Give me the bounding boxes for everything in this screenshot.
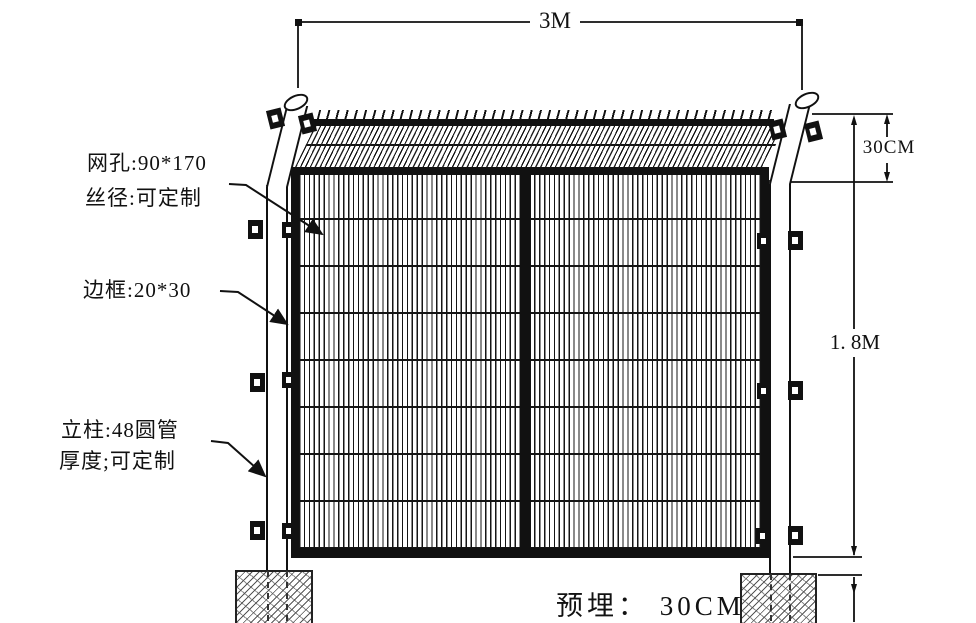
bent-top-rail — [313, 119, 774, 126]
dimension-label-width: 3M — [530, 8, 580, 34]
callout-wire-diameter: 丝径:可定制 — [85, 188, 202, 209]
dimension-label-panel-height: 1. 8M — [826, 330, 884, 355]
left-foundation-block — [235, 570, 313, 623]
panel-center-divider — [520, 167, 531, 558]
fence-technical-diagram: 3M 30CM 1. 8M 预埋： 30CM 网孔:90*170 丝径:可定制 … — [0, 0, 976, 623]
dimension-endpoint — [796, 19, 803, 26]
arrow-down — [851, 584, 857, 594]
buried-post-edge — [789, 574, 791, 621]
arrow-down — [851, 546, 857, 556]
dimension-endpoint — [295, 19, 302, 26]
clamp-bracket — [788, 231, 803, 250]
buried-post-edge — [770, 574, 772, 621]
right-foundation-block — [740, 573, 817, 623]
clamp-bracket — [756, 528, 769, 544]
callout-mesh-size: 网孔:90*170 — [87, 153, 207, 174]
arrow-down — [884, 172, 890, 182]
buried-post-edge — [267, 571, 269, 621]
clamp-bracket — [282, 222, 295, 238]
clamp-bracket — [788, 381, 803, 400]
callout-frame-size: 边框:20*30 — [83, 280, 191, 301]
dimension-label-bend-height: 30CM — [859, 137, 919, 159]
clamp-bracket — [282, 523, 295, 539]
clamp-bracket — [282, 372, 295, 388]
dimension-label-embed-depth: 预埋： 30CM — [556, 584, 745, 623]
clamp-bracket — [250, 373, 265, 392]
clamp-bracket — [298, 112, 317, 134]
clamp-bracket — [788, 526, 803, 545]
callout-post-thickness: 厚度;可定制 — [59, 451, 176, 472]
arrow-up — [884, 114, 890, 124]
height-dimension-1-8m — [793, 118, 862, 622]
clamp-bracket — [757, 383, 770, 399]
arrow-up — [851, 115, 857, 125]
wire-spikes — [317, 110, 775, 119]
buried-post-edge — [286, 571, 288, 621]
clamp-bracket — [250, 521, 265, 540]
clamp-bracket — [757, 233, 770, 249]
clamp-bracket — [248, 220, 263, 239]
clamp-bracket — [804, 120, 823, 142]
bent-top-mesh-band — [295, 126, 785, 167]
callout-post-spec: 立柱:48圆管 — [61, 420, 179, 441]
clamp-bracket — [266, 107, 285, 129]
